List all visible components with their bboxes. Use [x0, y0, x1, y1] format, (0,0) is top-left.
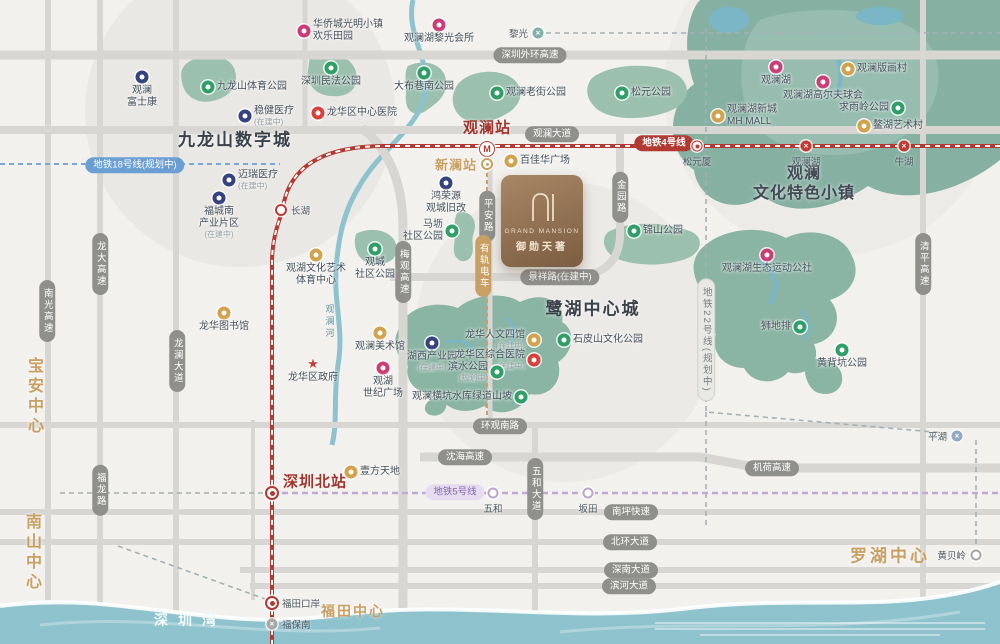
poi-label: 福城南 产业片区(在建中)	[199, 206, 239, 239]
poi-name: 观湖 世纪广场	[363, 376, 403, 399]
park-icon	[892, 102, 905, 115]
poi-label: 观澜湖黎光会所	[404, 33, 474, 45]
metro-station-icon	[275, 204, 287, 216]
road-pill: 平安路	[479, 191, 495, 242]
park-icon	[558, 334, 571, 347]
poi-name: 观澜版画村	[857, 63, 907, 74]
poi-dot	[765, 253, 770, 258]
enterprise-icon	[440, 177, 453, 190]
poi-dot	[632, 229, 637, 234]
metro-station-icon	[481, 158, 493, 170]
mall-icon	[218, 307, 231, 320]
road-pill: 南坪快速	[604, 504, 658, 520]
poi-name: 观澜湖	[761, 75, 791, 86]
poi-label: 观澜老街公园	[506, 87, 566, 99]
poi-name: 观澜 富士康	[127, 85, 157, 108]
poi-label: 黄背坑公园	[817, 358, 867, 370]
poi-label: 观澜湖高尔夫球会	[783, 90, 863, 102]
poi-name: 湖西产业园	[407, 351, 457, 362]
poi-label: 稳健医疗(在建中)	[254, 105, 294, 126]
metro-station-icon	[488, 488, 499, 499]
poi-dot	[378, 331, 383, 336]
metro-station-icon: ×	[952, 431, 963, 442]
construction-status: (在建中)	[238, 181, 278, 190]
poi-dot	[217, 196, 222, 201]
area-label: 观澜河	[324, 304, 337, 340]
station-name: 长湖	[291, 206, 310, 217]
road-pill: 景祥路(在建中)	[520, 269, 599, 285]
station-dot	[695, 144, 699, 148]
station-name: 黎光	[509, 29, 528, 40]
metro-station-icon: ×	[533, 28, 544, 39]
poi-label: 滨水公园(规划中)	[448, 361, 488, 382]
station-label: 牛湖	[894, 154, 913, 168]
station-label: 坂田	[578, 501, 597, 515]
leisure-icon	[433, 19, 446, 32]
poi-label: 观湖文化艺术 体育中心	[286, 263, 346, 287]
poi-label: 观澜美术馆	[355, 341, 405, 353]
leisure-icon	[817, 76, 830, 89]
poi-dot	[774, 65, 779, 70]
road-pill: 福龙路	[92, 465, 108, 516]
poi-label: 龙华人文四馆(在建中)	[465, 329, 525, 350]
poi-name: 迈瑞医疗	[238, 169, 278, 180]
metro-station-icon	[692, 141, 703, 152]
area-label: 九龙山数字城	[178, 126, 292, 151]
station-label: 长湖	[291, 203, 310, 217]
poi-name: 马坜 社区公园	[403, 219, 443, 242]
disclaimer-fine-print	[655, 622, 985, 624]
road-pill: 机荷高速	[745, 460, 799, 476]
station-label: 福田口岸	[282, 596, 320, 610]
poi-name: 观澜湖生态运动公社	[722, 263, 812, 274]
station-name: 牛湖	[894, 157, 913, 168]
park-icon	[446, 225, 459, 238]
park-icon	[794, 321, 807, 334]
station-label: 观澜站	[463, 117, 511, 138]
park-icon	[628, 225, 641, 238]
poi-name: 大布巷南公园	[394, 81, 454, 92]
poi-name: 求雨岭公园	[839, 102, 889, 113]
park-icon	[491, 87, 504, 100]
poi-dot	[798, 325, 803, 330]
station-name: 福田口岸	[282, 599, 320, 610]
station-name: 福保南	[282, 620, 311, 631]
construction-status: (规划中)	[448, 373, 488, 382]
poi-name: 观澜湖黎光会所	[404, 33, 474, 44]
poi-name: 深圳民法公园	[301, 76, 361, 87]
disclaimer-fine-print	[655, 628, 985, 630]
station-name: 坂田	[578, 504, 597, 515]
poi-dot	[896, 106, 901, 111]
poi-name: 观城 社区公园	[355, 257, 395, 280]
poi-label: 华侨城光明小镇 欢乐田园	[313, 19, 383, 43]
poi-dot	[450, 229, 455, 234]
road-pill: 龙大高速	[92, 233, 108, 295]
poi-dot	[840, 348, 845, 353]
park-icon	[418, 67, 431, 80]
poi-name: 鳌湖艺术村	[873, 120, 923, 131]
poi-name: 壹方天地	[360, 466, 400, 477]
station-label: 平湖	[928, 429, 947, 443]
poi-name: 狮地排	[761, 321, 791, 332]
park-icon	[491, 366, 504, 379]
poi-name: 龙华区中心医院	[327, 107, 397, 118]
mall-icon	[528, 334, 541, 347]
road-pill: 金园路	[612, 172, 628, 223]
poi-label: 观城 社区公园	[355, 257, 395, 281]
poi-label: 狮地排	[761, 321, 791, 333]
enterprise-icon	[223, 174, 236, 187]
poi-label: 马坜 社区公园	[403, 219, 443, 243]
station-name: 深圳北站	[283, 474, 347, 491]
station-label: 黎光	[509, 26, 528, 40]
poi-name: 石皮山文化公园	[573, 334, 643, 345]
poi-dot	[302, 29, 307, 34]
enterprise-icon	[213, 192, 226, 205]
road-pill: 沈海高速	[438, 449, 492, 465]
mall-icon	[374, 327, 387, 340]
area-label: 宝安中心	[21, 357, 45, 437]
road-pill: 清平高速	[915, 233, 931, 295]
mall-icon	[842, 63, 855, 76]
poi-name: 九龙山体育公园	[217, 81, 287, 92]
poi-name: 龙华区政府	[288, 372, 338, 383]
poi-label: 观澜 富士康	[127, 85, 157, 109]
poi-dot	[509, 159, 514, 164]
poi-name: 观湖文化艺术 体育中心	[286, 263, 346, 286]
station-label: 黄贝岭	[937, 548, 966, 562]
park-icon	[836, 344, 849, 357]
area-label: 福田中心	[321, 601, 385, 621]
station-label: 福保南	[282, 617, 311, 631]
poi-dot	[227, 178, 232, 183]
poi-dot	[444, 181, 449, 186]
area-label: 深圳湾	[154, 610, 226, 630]
poi-dot	[349, 470, 354, 475]
station-name: 观澜湖	[792, 157, 821, 168]
poi-name: 滨水公园	[448, 361, 488, 372]
poi-name: 观澜湖新城 MH MALL	[727, 104, 777, 127]
area-label: 南山中心	[19, 513, 43, 593]
poi-dot	[422, 71, 427, 76]
poi-name: 龙华图书馆	[199, 321, 249, 332]
road-pill: 南光高速	[39, 280, 55, 342]
poi-dot	[620, 91, 625, 96]
poi-label: 观澜横坑水库绿道山坡	[412, 391, 512, 403]
poi-dot	[329, 66, 334, 71]
hospital-icon	[528, 354, 541, 367]
park-icon	[515, 391, 528, 404]
construction-status: (在建中)	[199, 230, 239, 239]
poi-dot	[862, 124, 867, 129]
station-label: 深圳北站	[283, 471, 347, 492]
hospital-icon	[312, 107, 325, 120]
poi-label: 锦山公园	[643, 225, 683, 237]
poi-name: 观澜横坑水库绿道山坡	[412, 391, 512, 402]
mall-icon	[345, 466, 358, 479]
station-label: 松元厦	[683, 154, 712, 168]
road-pill: 环观南路	[473, 418, 527, 434]
metro-station-icon: M	[479, 141, 495, 157]
poi-dot	[495, 91, 500, 96]
poi-dot	[314, 253, 319, 258]
poi-label: 九龙山体育公园	[217, 81, 287, 93]
poi-label: 松元公园	[631, 87, 671, 99]
station-name: 松元厦	[683, 157, 712, 168]
poi-name: 稳健医疗	[254, 105, 294, 116]
park-icon	[202, 81, 215, 94]
road-pill: 地铁5号线	[425, 484, 484, 500]
enterprise-icon	[239, 110, 252, 123]
mall-icon	[712, 110, 725, 123]
poi-label: 观澜版画村	[857, 63, 907, 75]
poi-name: 福城南 产业片区	[199, 206, 239, 229]
leisure-icon	[298, 25, 311, 38]
station-name: 五和	[483, 504, 502, 515]
poi-dot	[532, 358, 537, 363]
enterprise-icon	[426, 337, 439, 350]
poi-label: 求雨岭公园	[839, 102, 889, 114]
station-dot	[486, 163, 489, 166]
poi-name: 松元公园	[631, 87, 671, 98]
station-name: 观澜站	[463, 120, 511, 137]
leisure-icon	[770, 61, 783, 74]
poi-label: 观澜湖	[761, 75, 791, 87]
construction-status: (在建中)	[254, 117, 294, 126]
poi-name: 百佳华广场	[520, 155, 570, 166]
road-pill: 深圳外环高速	[493, 47, 566, 63]
poi-label: 龙华图书馆	[199, 321, 249, 333]
poi-label: 鸿荣源 观城旧改	[426, 191, 466, 215]
park-icon	[369, 243, 382, 256]
poi-label: 观澜湖生态运动公社	[722, 263, 812, 275]
poi-dot	[562, 338, 567, 343]
poi-dot	[495, 370, 500, 375]
metro-station-icon	[265, 596, 279, 610]
metro-station-icon: ×	[801, 141, 812, 152]
poi-dot	[846, 67, 851, 72]
metro-station-icon	[265, 486, 279, 500]
poi-dot	[373, 247, 378, 252]
poi-label: 大布巷南公园	[394, 81, 454, 93]
poi-name: 龙华区综合医院	[455, 349, 525, 360]
road-pill: 梅观高速	[395, 241, 411, 303]
poi-dot	[243, 114, 248, 119]
metro-station-icon	[971, 550, 982, 561]
poi-label: 观湖 世纪广场	[363, 376, 403, 400]
road-pill: 有轨电车	[475, 235, 491, 297]
poi-dot	[316, 111, 321, 116]
station-name: 新澜站	[435, 158, 477, 173]
poi-dot	[519, 395, 524, 400]
poi-label: 观澜湖新城 MH MALL	[727, 104, 777, 128]
poi-label: 石皮山文化公园	[573, 334, 643, 346]
metro-station-icon: ×	[899, 141, 910, 152]
poi-dot	[430, 341, 435, 346]
road-pill: 地铁4号线	[634, 135, 693, 151]
project-logo: GRAND MANSION 御勋天著	[501, 175, 583, 267]
mall-icon	[505, 155, 518, 168]
mall-icon	[310, 249, 323, 262]
poi-dot	[821, 80, 826, 85]
poi-label: 龙华区中心医院	[327, 107, 397, 119]
station-name: 平湖	[928, 432, 947, 443]
grand-mansion-monogram-icon	[527, 190, 557, 224]
poi-label: 龙华区政府	[288, 372, 338, 384]
poi-name: 鸿荣源 观城旧改	[426, 191, 466, 214]
poi-name: 观澜美术馆	[355, 341, 405, 352]
leisure-icon	[761, 249, 774, 262]
road-pill: 北环大道	[603, 534, 657, 550]
poi-label: 迈瑞医疗(在建中)	[238, 169, 278, 190]
station-label: 五和	[483, 501, 502, 515]
park-icon	[325, 62, 338, 75]
area-label: 观澜 文化特色小镇	[753, 164, 855, 204]
project-name-cn: 御勋天著	[516, 238, 568, 253]
station-dot	[270, 601, 275, 606]
road-pill: 五和大道	[527, 458, 543, 520]
disclaimer-fine-print	[700, 634, 940, 636]
road-pill: 地铁18号线(规划中)	[85, 157, 184, 173]
location-map: 九龙山数字城鹭湖中心城观澜 文化特色小镇宝安中心南山中心罗湖中心福田中心深圳湾观…	[0, 0, 1000, 644]
poi-label: 深圳民法公园	[301, 76, 361, 88]
station-name: 黄贝岭	[937, 551, 966, 562]
park-icon	[616, 87, 629, 100]
poi-dot	[532, 338, 537, 343]
road-pill: 地铁22号线(规划中)	[697, 278, 715, 401]
metro-station-icon: ×	[267, 619, 278, 630]
station-label: 观澜湖	[792, 154, 821, 168]
road-pill: 龙澜大道	[169, 330, 185, 392]
poi-dot	[437, 23, 442, 28]
poi-dot	[716, 114, 721, 119]
poi-name: 观澜湖高尔夫球会	[783, 90, 863, 101]
government-star-icon: ★	[306, 357, 320, 371]
poi-dot	[140, 75, 145, 80]
project-name-en: GRAND MANSION	[504, 228, 579, 235]
station-label: 新澜站	[435, 155, 477, 174]
labels-layer: 九龙山数字城鹭湖中心城观澜 文化特色小镇宝安中心南山中心罗湖中心福田中心深圳湾观…	[0, 0, 1000, 644]
road-pill: 观澜大道	[525, 126, 579, 142]
area-label: 鹭湖中心城	[546, 295, 641, 320]
leisure-icon	[377, 362, 390, 375]
area-label: 罗湖中心	[850, 542, 930, 567]
poi-dot	[381, 366, 386, 371]
poi-name: 华侨城光明小镇 欢乐田园	[313, 19, 383, 42]
poi-name: 龙华人文四馆	[465, 329, 525, 340]
poi-name: 观澜老街公园	[506, 87, 566, 98]
poi-name: 黄背坑公园	[817, 358, 867, 369]
poi-label: 鳌湖艺术村	[873, 120, 923, 132]
mall-icon	[858, 120, 871, 133]
poi-dot	[222, 311, 227, 316]
poi-name: 锦山公园	[643, 225, 683, 236]
road-pill: 深南大道	[604, 562, 658, 578]
station-dot	[270, 491, 275, 496]
poi-label: 壹方天地	[360, 466, 400, 478]
metro-station-icon	[583, 488, 594, 499]
poi-dot	[206, 85, 211, 90]
road-pill: 滨河大道	[602, 578, 656, 594]
poi-label: 百佳华广场	[520, 155, 570, 167]
enterprise-icon	[136, 71, 149, 84]
